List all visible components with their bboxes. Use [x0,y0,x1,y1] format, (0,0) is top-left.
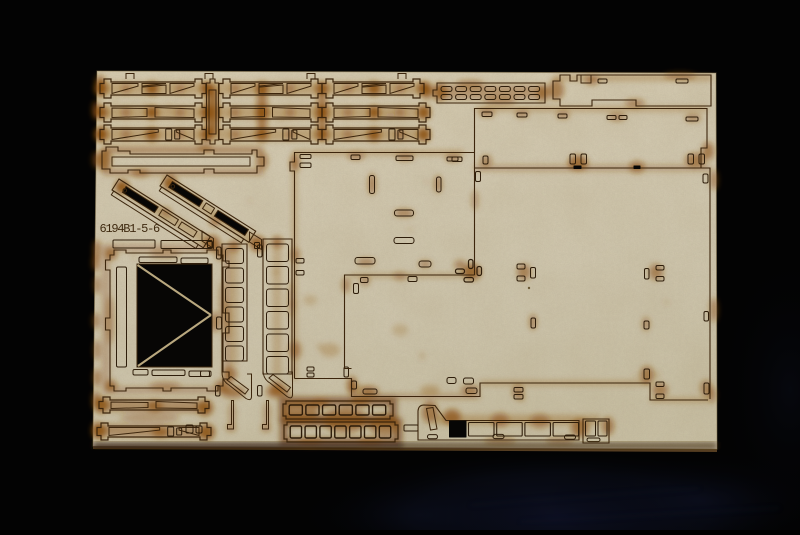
svg-text:6194B1-5-6: 6194B1-5-6 [100,222,161,236]
